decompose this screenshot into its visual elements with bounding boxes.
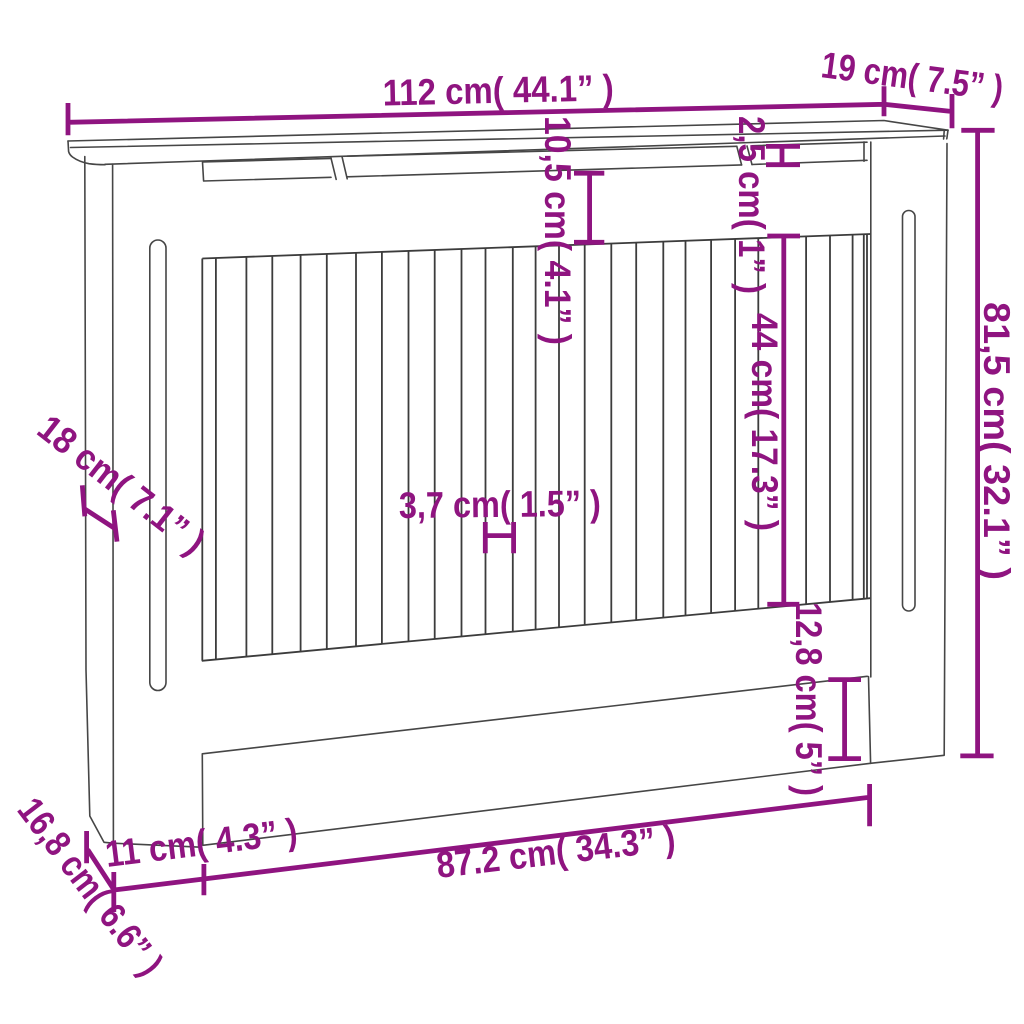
svg-text:10,5 cm( 4.1” ): 10,5 cm( 4.1” ) (537, 116, 578, 345)
svg-text:2,5 cm( 1” ): 2,5 cm( 1” ) (731, 116, 772, 294)
svg-text:12,8 cm( 5” ): 12,8 cm( 5” ) (788, 602, 829, 796)
svg-text:44 cm( 17.3” ): 44 cm( 17.3” ) (744, 313, 785, 531)
svg-text:3,7 cm( 1.5” ): 3,7 cm( 1.5” ) (399, 483, 601, 526)
svg-text:112 cm( 44.1” ): 112 cm( 44.1” ) (382, 67, 614, 113)
svg-text:81,5 cm( 32.1” ): 81,5 cm( 32.1” ) (976, 302, 1017, 580)
